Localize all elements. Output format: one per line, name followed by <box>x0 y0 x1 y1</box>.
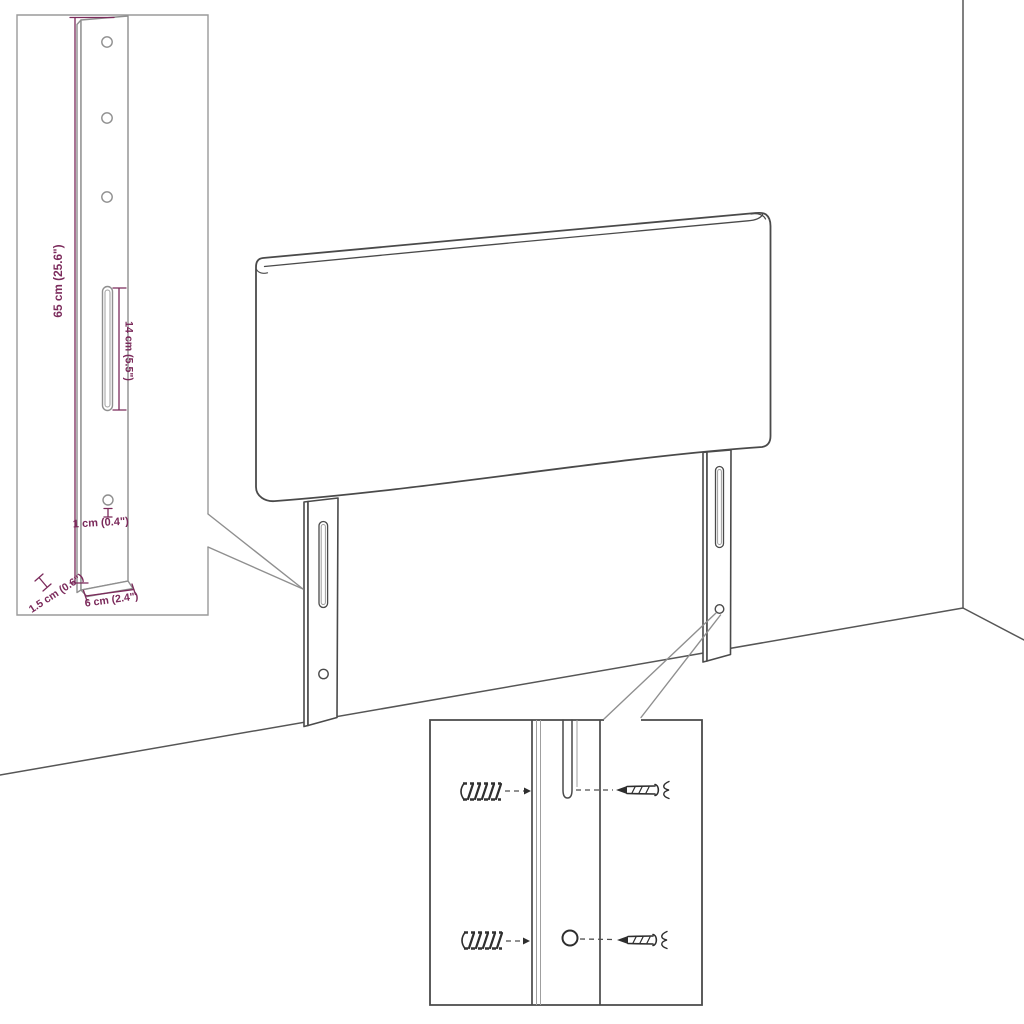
wall-plug-upper-hatch <box>468 784 501 799</box>
floor-line-right <box>963 608 1024 640</box>
assembly-diagram-canvas: 65 cm (25.6") 14 cm (5.5") 1 cm (0.4") 1… <box>0 0 1024 1024</box>
screw-upper-drive-squiggle <box>664 782 669 799</box>
inset-leg-edges <box>532 720 600 1005</box>
product-diagram: 65 cm (25.6") 14 cm (5.5") 1 cm (0.4") 1… <box>0 0 1024 1024</box>
right-leg-front-face <box>707 450 731 661</box>
screw-upper <box>576 782 669 799</box>
fastener-inset-leg <box>532 720 600 1005</box>
dimension-leg-depth: 1.5 cm (0.6") <box>27 571 86 615</box>
slot-length-label: 14 cm (5.5") <box>123 321 135 381</box>
callout-line-upper <box>208 514 303 589</box>
callout-line-lower <box>208 547 303 589</box>
fastener-detail-inset <box>430 613 721 1005</box>
wall-plug-upper <box>461 784 531 800</box>
screw-lower <box>580 932 667 949</box>
inset-leg-inner-edges <box>537 720 541 1005</box>
wall-plug-upper-cap <box>461 784 464 800</box>
callout-line-right-2 <box>641 615 721 718</box>
leg-depth-label: 1.5 cm (0.6") <box>27 571 86 615</box>
leg-depth-dim-line <box>35 574 51 591</box>
screw-upper-threads <box>632 787 649 793</box>
leg-height-label: 65 cm (25.6") <box>51 244 65 317</box>
screw-lower-leader <box>580 939 613 940</box>
screw-lower-drive-squiggle <box>662 932 667 949</box>
wall-plug-lower-hatch <box>469 933 502 948</box>
detail-leg-drawing <box>77 16 133 597</box>
fastener-inset-frame <box>430 720 702 1005</box>
screw-lower-tip <box>617 936 628 944</box>
wall-plug-lower <box>462 933 530 949</box>
wall-plug-lower-cap <box>462 933 465 949</box>
wall-plug-lower-arrow <box>523 938 530 945</box>
callout-lines-left <box>208 514 303 589</box>
right-mounting-leg <box>703 450 731 662</box>
panel-outline <box>256 213 771 501</box>
headboard-panel <box>256 213 771 501</box>
callout-line-right-1 <box>604 613 716 719</box>
floor-line-left <box>0 608 963 775</box>
inset-hole <box>563 931 578 946</box>
left-mounting-leg <box>304 498 338 727</box>
screw-upper-tip <box>616 786 627 794</box>
left-leg-front-face <box>308 498 338 726</box>
inset-slot <box>563 720 572 798</box>
wall-plug-upper-arrow <box>524 788 531 795</box>
screw-lower-threads <box>633 937 650 943</box>
